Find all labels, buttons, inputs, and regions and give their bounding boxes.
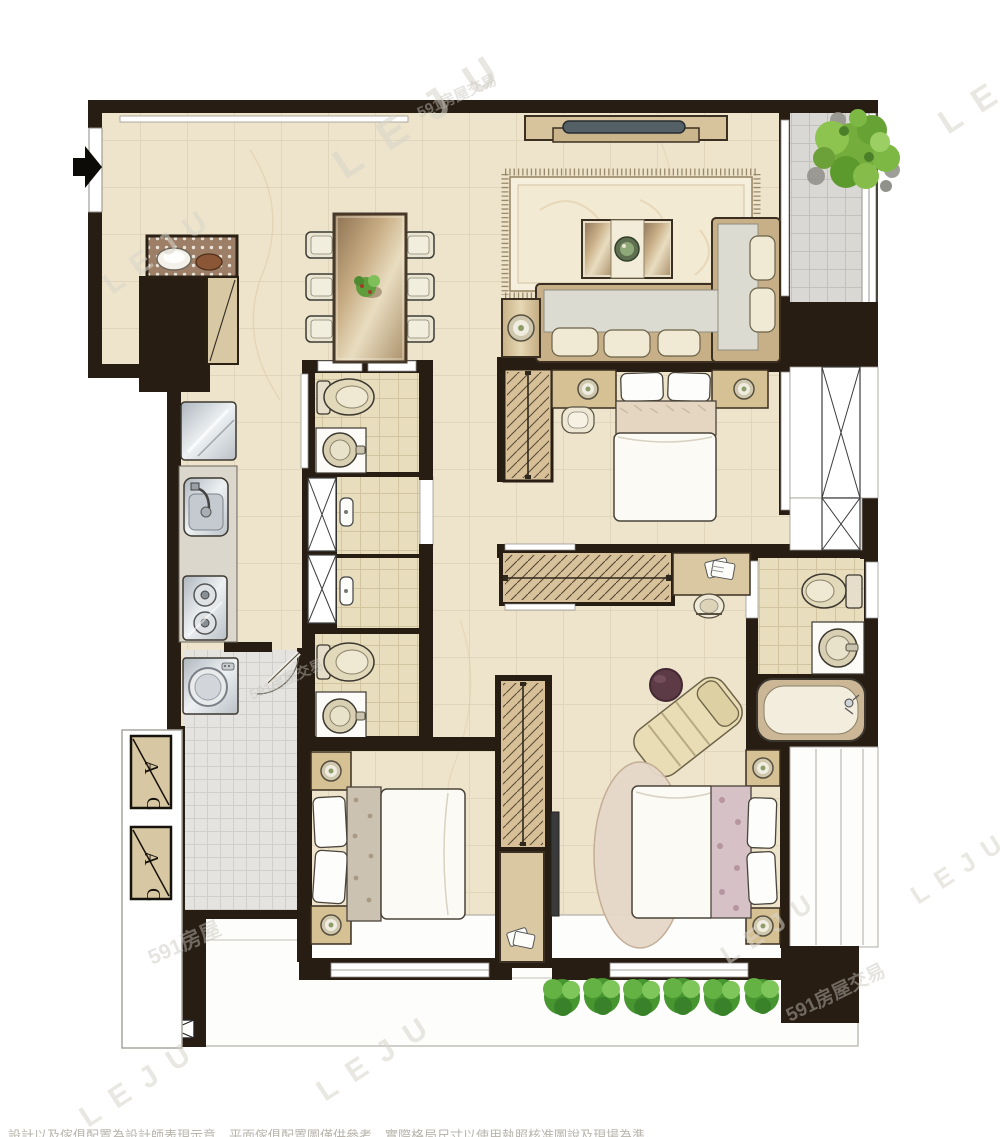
master-bathroom <box>746 545 878 750</box>
window <box>301 374 308 468</box>
kitchen-sink-icon <box>184 478 228 536</box>
stool <box>562 407 594 433</box>
ac-label-a: A <box>140 851 162 866</box>
fridge-icon <box>181 402 236 460</box>
sink-icon <box>812 622 864 674</box>
blanket <box>616 401 716 435</box>
window <box>781 372 790 510</box>
sofa-pillow <box>658 330 700 356</box>
entry-cabinet <box>207 277 238 364</box>
dining-chair <box>306 274 336 300</box>
stove-icon <box>183 576 227 640</box>
tv-icon <box>563 121 685 133</box>
bowl-icon <box>196 254 222 270</box>
mattress <box>632 786 716 918</box>
mattress <box>381 789 465 919</box>
sofa-pillow <box>750 288 775 332</box>
pillow <box>313 796 348 848</box>
ac-label-a: A <box>140 760 162 775</box>
sofa-pillow <box>604 330 650 357</box>
ac-unit-1: A C <box>131 736 171 810</box>
cabinet-desk <box>500 852 544 962</box>
watermark-leju: LEJU <box>932 23 1000 141</box>
table-lamp-icon <box>321 761 341 781</box>
ac-label-c: C <box>142 797 164 810</box>
vanity-chair <box>694 594 724 618</box>
coffee-table <box>582 220 672 278</box>
pipe-shaft <box>308 478 336 623</box>
dining-chair <box>404 232 434 258</box>
pillow <box>747 851 778 904</box>
sink-icon <box>316 428 366 473</box>
wall-tv-icon <box>551 812 559 916</box>
door-opening <box>420 477 433 545</box>
dining-area <box>306 214 434 362</box>
dining-chair <box>404 316 434 342</box>
blanket <box>347 787 381 921</box>
toilet-icon <box>802 574 862 608</box>
pillow <box>668 372 711 401</box>
bathtub-icon <box>757 679 865 741</box>
toilet-icon <box>317 379 374 415</box>
blanket <box>711 786 751 918</box>
wardrobe <box>500 680 546 848</box>
dining-chair <box>404 274 434 300</box>
dining-chair <box>306 232 336 258</box>
bathroom-bottom <box>315 634 421 738</box>
ottoman <box>650 669 682 701</box>
sink-icon <box>316 692 366 738</box>
ac-platform: A C A C <box>122 730 182 1048</box>
pillow <box>621 372 664 401</box>
watermark-leju: LEJU <box>905 823 1000 911</box>
tv-console <box>525 116 727 142</box>
pillow <box>312 850 348 904</box>
balcony-door <box>781 120 789 296</box>
shower-cell-2 <box>337 558 420 628</box>
toilet-icon <box>317 643 374 681</box>
floor-plan-page: A C A C LEJU LEJU LEJU LEJU LEJU LEJU LE… <box>0 0 1000 1137</box>
ac-label-c: C <box>142 888 164 901</box>
table-lamp-icon <box>753 758 773 778</box>
dining-chair <box>306 316 336 342</box>
table-lamp-icon <box>734 379 754 399</box>
pillow <box>747 798 777 849</box>
window <box>866 562 878 618</box>
long-wardrobe <box>501 544 673 610</box>
washer-icon <box>183 658 238 714</box>
dining-table <box>334 214 406 362</box>
table-lamp-icon <box>578 379 598 399</box>
wardrobe <box>504 369 552 481</box>
mattress <box>614 433 716 521</box>
shower-cell-1 <box>337 477 420 554</box>
disclaimer-text: 設計以及傢俱配置為設計師表現示意，平面傢俱配置圖僅供參考，實際格局尺寸以使用執照… <box>8 1128 658 1137</box>
bathroom-top <box>301 361 421 473</box>
bathroom-block <box>301 360 433 744</box>
sofa-pillow <box>552 328 598 356</box>
sofa-pillow <box>750 236 775 280</box>
floor-plan-canvas: A C A C LEJU LEJU LEJU LEJU LEJU LEJU LE… <box>0 0 1000 1137</box>
side-table <box>502 299 540 357</box>
double-bed <box>632 786 777 918</box>
ac-unit-2: A C <box>131 827 171 901</box>
vanity-desk <box>673 553 750 595</box>
table-lamp-icon <box>321 915 341 935</box>
double-bed <box>312 787 465 921</box>
